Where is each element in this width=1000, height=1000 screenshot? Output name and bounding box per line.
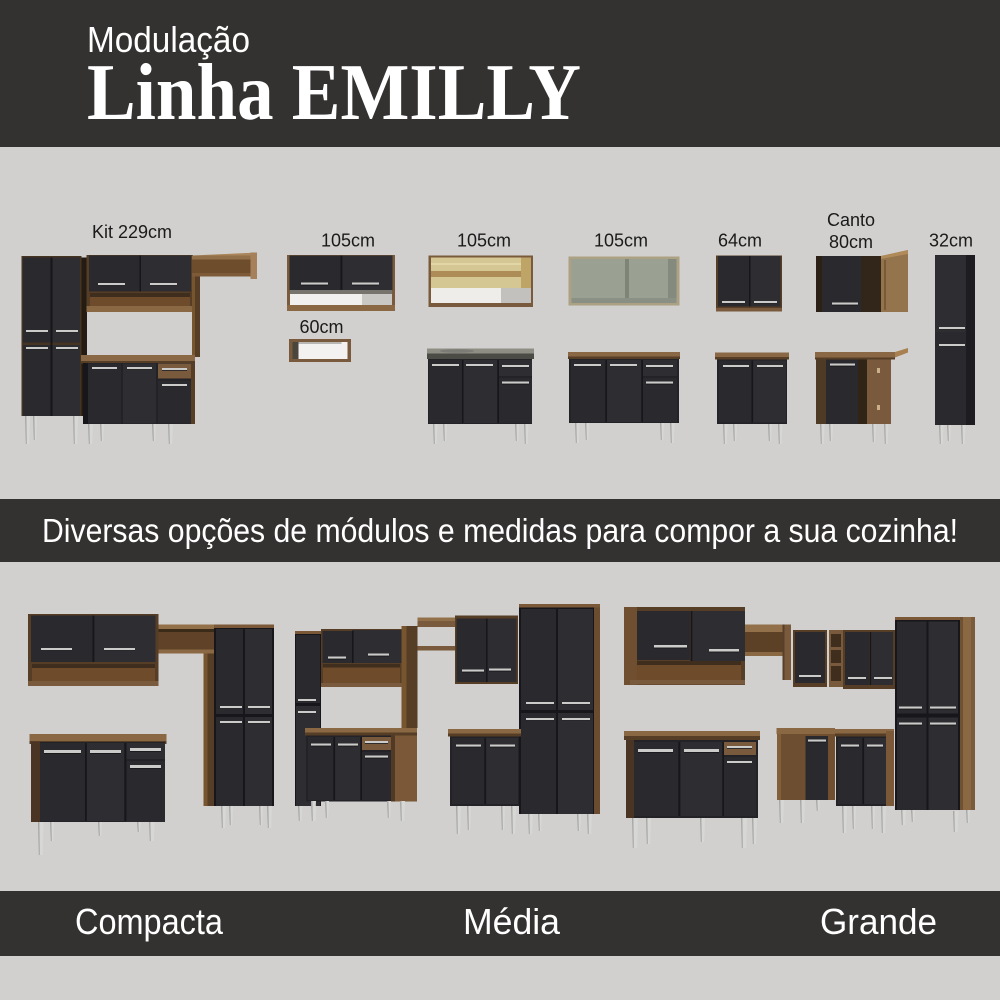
svg-text:Canto: Canto [827,210,875,230]
svg-text:105cm: 105cm [321,231,375,251]
svg-text:105cm: 105cm [457,231,511,251]
svg-text:Linha EMILLY: Linha EMILLY [87,47,581,137]
svg-text:Kit 229cm: Kit 229cm [92,222,172,242]
svg-text:32cm: 32cm [929,231,973,251]
svg-text:80cm: 80cm [829,232,873,252]
svg-text:Compacta: Compacta [75,901,224,942]
svg-text:Grande: Grande [820,901,937,942]
svg-text:60cm: 60cm [299,317,343,337]
svg-text:105cm: 105cm [594,231,648,251]
svg-text:64cm: 64cm [718,231,762,251]
svg-text:Diversas opções de módulos e m: Diversas opções de módulos e medidas par… [42,512,958,549]
svg-text:Média: Média [463,901,561,942]
